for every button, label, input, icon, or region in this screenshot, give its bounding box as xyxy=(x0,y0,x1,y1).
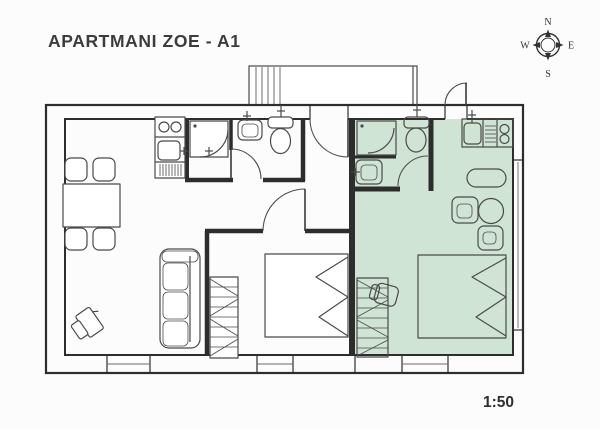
compass-label-west: W xyxy=(520,41,530,52)
chair xyxy=(93,158,115,181)
bottom-windows xyxy=(107,355,448,373)
double-bed xyxy=(265,254,348,337)
right-window xyxy=(513,160,523,330)
compass-label-east: E xyxy=(568,41,574,52)
shower xyxy=(190,121,228,157)
bathroom-door-left xyxy=(231,149,261,179)
bedroom-door-left xyxy=(263,189,305,231)
washbasin xyxy=(238,111,262,140)
scale-label: 1:50 xyxy=(483,394,514,411)
bedroom-left xyxy=(210,254,348,358)
entrance-door-left xyxy=(310,119,348,157)
floor-plan-sheet: APARTMANI ZOE - A1 N S E W xyxy=(0,0,600,429)
left-bathroom xyxy=(190,105,293,157)
tv xyxy=(68,304,108,343)
sofa xyxy=(160,249,200,348)
compass-label-south: S xyxy=(545,69,551,80)
compass-rose-icon: N S E W xyxy=(520,17,574,80)
chair xyxy=(65,228,87,250)
chair xyxy=(65,158,87,181)
toilet xyxy=(268,105,293,154)
entrance-door-right xyxy=(445,83,467,105)
compass-label-north: N xyxy=(544,17,551,28)
dining-set-left xyxy=(63,158,120,250)
page-title: APARTMANI ZOE - A1 xyxy=(48,31,241,51)
left-kitchen-unit xyxy=(155,117,188,178)
entrance-porch xyxy=(249,66,417,105)
floor-plan-drawing: APARTMANI ZOE - A1 N S E W xyxy=(0,0,600,429)
wardrobe xyxy=(210,277,238,358)
dining-table xyxy=(63,184,120,227)
chair xyxy=(93,228,115,250)
